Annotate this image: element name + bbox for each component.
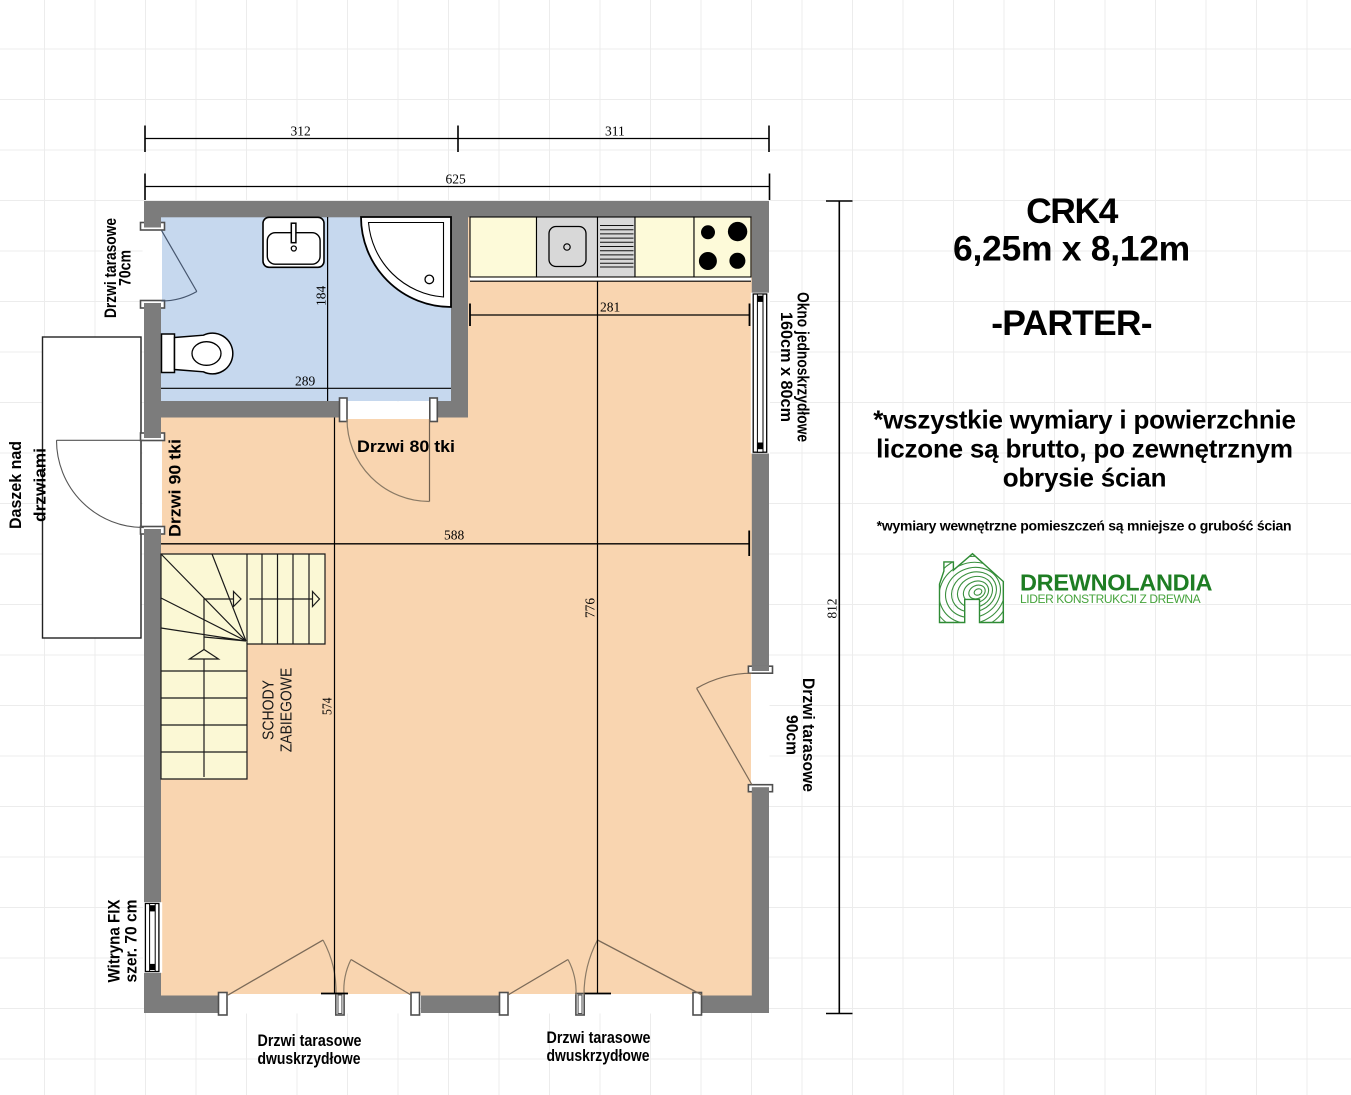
svg-text:liczone są brutto, po zewnętrz: liczone są brutto, po zewnętrznym: [876, 434, 1293, 464]
svg-text:*wymiary wewnętrzne pomieszcze: *wymiary wewnętrzne pomieszczeń są mniej…: [877, 518, 1292, 534]
svg-text:6,25m x 8,12m: 6,25m x 8,12m: [953, 229, 1190, 269]
svg-text:LIDER KONSTRUKCJI Z DREWNA: LIDER KONSTRUKCJI Z DREWNA: [1020, 592, 1201, 606]
svg-text:dwuskrzydłowe: dwuskrzydłowe: [547, 1046, 650, 1065]
svg-text:281: 281: [600, 300, 620, 315]
svg-text:dwuskrzydłowe: dwuskrzydłowe: [258, 1049, 361, 1068]
svg-text:Drzwi tarasowe: Drzwi tarasowe: [258, 1031, 362, 1050]
svg-text:CRK4: CRK4: [1026, 191, 1118, 231]
svg-text:*wszystkie wymiary i powierzch: *wszystkie wymiary i powierzchnie: [873, 405, 1296, 435]
svg-text:311: 311: [605, 124, 625, 139]
svg-text:SCHODY: SCHODY: [261, 680, 278, 740]
svg-text:588: 588: [444, 528, 465, 543]
svg-text:Drzwi tarasowe: Drzwi tarasowe: [547, 1028, 651, 1047]
svg-text:Daszek nad: Daszek nad: [6, 441, 25, 529]
svg-text:Drzwi 80 tki: Drzwi 80 tki: [357, 437, 455, 456]
svg-text:625: 625: [446, 172, 467, 187]
svg-text:drzwiami: drzwiami: [31, 448, 50, 522]
svg-text:312: 312: [291, 124, 311, 139]
svg-text:184: 184: [314, 286, 329, 307]
svg-text:289: 289: [295, 374, 316, 389]
svg-text:776: 776: [583, 598, 598, 618]
svg-text:obrysie ścian: obrysie ścian: [1003, 463, 1167, 493]
svg-text:90cm: 90cm: [783, 715, 802, 755]
svg-text:szer. 70 cm: szer. 70 cm: [122, 900, 141, 983]
svg-text:70cm: 70cm: [116, 250, 135, 286]
svg-text:574: 574: [320, 697, 335, 715]
svg-text:Drzwi 90 tki: Drzwi 90 tki: [166, 439, 185, 537]
svg-text:812: 812: [825, 599, 840, 619]
svg-text:160cm x 80cm: 160cm x 80cm: [777, 312, 796, 422]
svg-text:ZABIEGOWE: ZABIEGOWE: [279, 668, 296, 753]
svg-text:-PARTER-: -PARTER-: [991, 303, 1152, 343]
